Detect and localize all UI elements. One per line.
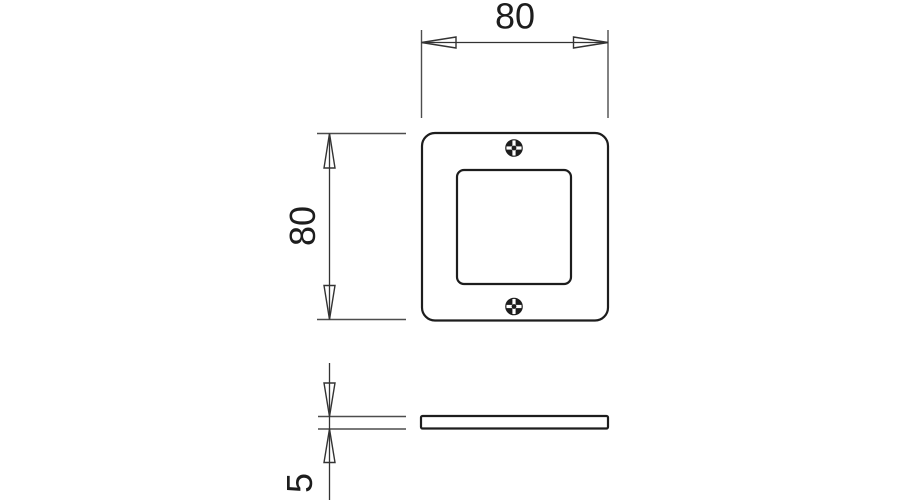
screw-center: [512, 146, 517, 151]
phillips-screw-icon: [506, 298, 522, 314]
height-dimension-label: 80: [282, 206, 323, 246]
technical-drawing-page: 80 80: [0, 0, 900, 500]
width-dimension: 80: [422, 0, 609, 118]
technical-drawing-canvas: 80 80: [0, 0, 900, 500]
front-view: [422, 133, 608, 321]
width-dimension-label: 80: [495, 0, 535, 37]
thickness-dimension-label: 5: [279, 473, 320, 493]
thickness-dimension: 5: [279, 363, 406, 500]
phillips-screw-icon: [506, 140, 522, 156]
side-view: [421, 416, 608, 429]
screw-center: [512, 304, 517, 309]
height-dimension: 80: [282, 134, 406, 320]
plate-edge-outline: [421, 416, 608, 429]
plate-opening: [457, 170, 571, 284]
